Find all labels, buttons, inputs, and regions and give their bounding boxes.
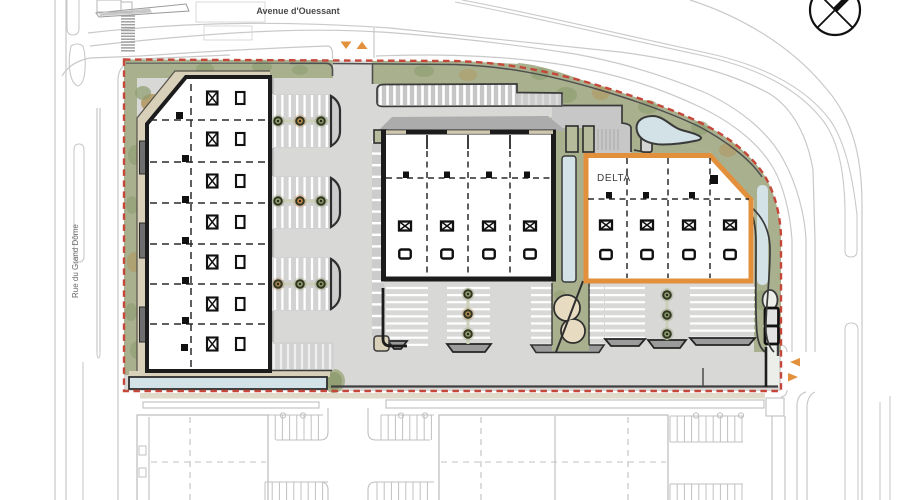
svg-text:Rue du Grand Dôme: Rue du Grand Dôme: [71, 224, 80, 298]
svg-text:DELTA: DELTA: [597, 173, 631, 184]
svg-text:Avenue d'Ouessant: Avenue d'Ouessant: [256, 6, 339, 16]
